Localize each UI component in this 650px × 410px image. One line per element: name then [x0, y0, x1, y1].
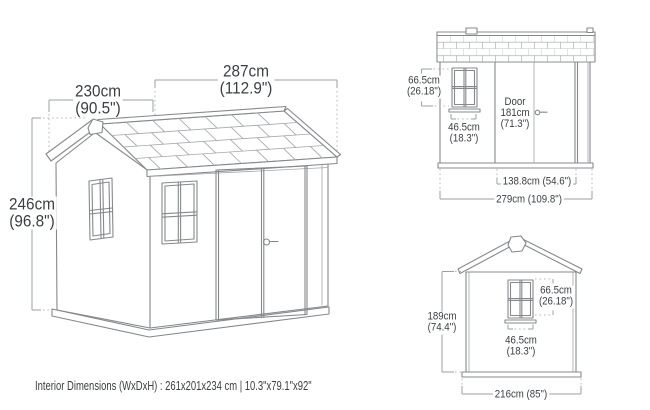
dim-value: 138.8cm (54.6")	[502, 176, 571, 187]
dim-label-front-overall-width: 216cm (85")	[493, 389, 549, 400]
front-gable-window	[505, 280, 536, 323]
perspective-shed-drawing	[0, 0, 390, 375]
dim-label-front-window-height: 66.5cm (26.18")	[537, 286, 575, 309]
front-window-sill	[505, 320, 536, 323]
gable-window	[89, 178, 113, 240]
dim-label-side-overall-width: 279cm (109.8")	[494, 194, 563, 205]
left-roof-slope	[458, 242, 511, 274]
dim-value: 216cm (85")	[495, 389, 547, 400]
dim-label-perspective-depth: 230cm (90.5")	[73, 84, 123, 117]
front-base	[462, 372, 581, 377]
dim-label-perspective-width: 287cm (112.9")	[218, 64, 274, 97]
dim-value-in: (26.18")	[407, 87, 441, 98]
side-window	[449, 68, 480, 112]
dim-value-in: (18.3")	[448, 134, 480, 145]
window-sill	[449, 109, 480, 112]
front-elevation-drawing	[425, 225, 650, 410]
dim-value-in: (26.18")	[538, 297, 572, 308]
dim-value-in: (74.4")	[427, 323, 456, 334]
right-roof-slope	[523, 240, 583, 274]
dim-label-side-door: Door 181cm (71.3")	[499, 96, 532, 130]
dim-label-perspective-height: 246cm (96.8")	[7, 197, 57, 230]
side-base	[438, 163, 593, 168]
dim-label-side-door-opening: 138.8cm (54.6")	[500, 176, 572, 187]
roof-corner-step	[587, 28, 593, 33]
dim-value-in: (90.5")	[75, 100, 121, 117]
shed-dimension-diagram: 287cm (112.9") 230cm (90.5") 246cm (96.8…	[0, 0, 650, 410]
side-door-handle	[535, 110, 540, 115]
dim-label-front-window-width: 46.5cm (18.3")	[503, 336, 538, 359]
dim-value-in: (96.8")	[9, 213, 55, 230]
peak-cap	[508, 236, 526, 252]
front-window	[162, 181, 197, 244]
dim-label-side-window-height: 66.5cm (26.18")	[405, 76, 443, 99]
front-roof	[458, 236, 582, 274]
dim-label-front-wall-height: 189cm (74.4")	[425, 312, 458, 335]
dim-label-side-window-width: 46.5cm (18.3")	[446, 123, 481, 146]
dim-value: 279cm (109.8")	[496, 194, 562, 205]
roof-vent	[466, 28, 477, 34]
dim-value-in: (71.3")	[500, 119, 529, 130]
dim-value-in: (18.3")	[505, 347, 537, 358]
interior-dimensions-note: Interior Dimensions (WxDxH) : 261x201x23…	[35, 379, 312, 393]
dim-value-in: (112.9")	[220, 80, 273, 97]
side-roof-band	[437, 28, 595, 62]
